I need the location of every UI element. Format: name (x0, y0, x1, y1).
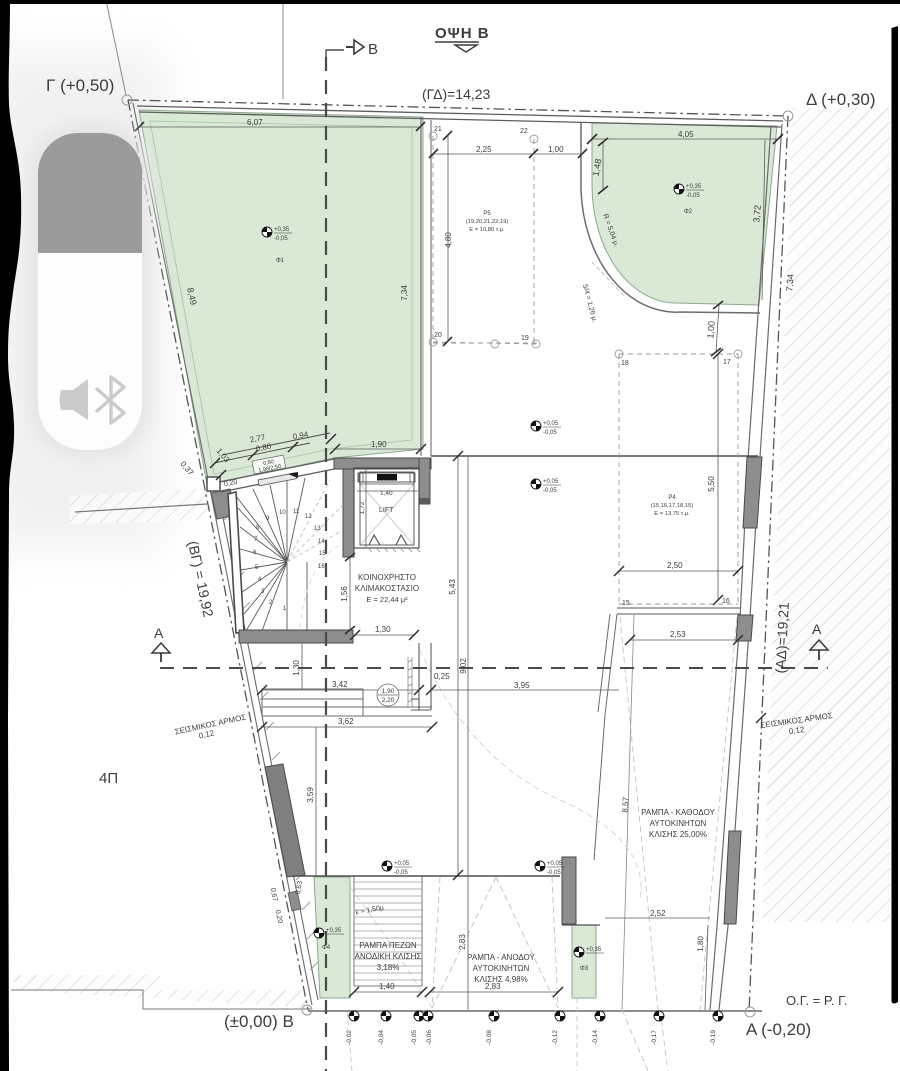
svg-text:7,34: 7,34 (400, 285, 409, 301)
svg-text:5,43: 5,43 (448, 579, 457, 595)
svg-text:2,83: 2,83 (458, 934, 467, 950)
svg-text:0,25: 0,25 (434, 672, 450, 681)
svg-text:Ε = 22,44 μ²: Ε = 22,44 μ² (366, 595, 408, 604)
svg-text:+0,35: +0,35 (586, 947, 602, 953)
svg-text:19: 19 (521, 335, 529, 342)
svg-text:2,25: 2,25 (476, 145, 492, 154)
svg-text:1,40: 1,40 (380, 490, 393, 497)
svg-text:ΟΨΗ Β: ΟΨΗ Β (435, 25, 490, 42)
svg-text:+0,05: +0,05 (543, 479, 559, 485)
svg-text:ΡΑΜΠΑ ΠΕΖΩΝ: ΡΑΜΠΑ ΠΕΖΩΝ (359, 941, 417, 950)
svg-text:ΚΛΙΜΑΚΟΣΤΑΣΙΟ: ΚΛΙΜΑΚΟΣΤΑΣΙΟ (355, 584, 419, 593)
svg-text:(19,20,21,22,19): (19,20,21,22,19) (466, 219, 509, 225)
svg-text:B: B (368, 41, 378, 58)
svg-text:16: 16 (722, 598, 730, 605)
svg-text:ΚΛΙΣΗΣ 25,00%: ΚΛΙΣΗΣ 25,00% (649, 830, 707, 839)
svg-text:8,57: 8,57 (621, 796, 631, 813)
svg-text:ΚΟΙΝΟΧΡΗΣΤΟ: ΚΟΙΝΟΧΡΗΣΤΟ (358, 573, 416, 582)
svg-text:2,52: 2,52 (650, 909, 666, 918)
svg-text:1,00: 1,00 (705, 321, 716, 339)
svg-text:Ε = 13,75 τ.μ.: Ε = 13,75 τ.μ. (654, 511, 690, 517)
svg-text:1,72: 1,72 (359, 501, 366, 514)
svg-text:9,02: 9,02 (459, 658, 468, 674)
svg-text:-0,05: -0,05 (543, 488, 557, 494)
svg-text:2,50: 2,50 (667, 561, 683, 570)
svg-text:3,59: 3,59 (306, 787, 315, 803)
svg-text:A: A (154, 625, 164, 641)
svg-text:22: 22 (520, 128, 528, 135)
svg-text:11: 11 (293, 509, 300, 515)
svg-text:-0,19: -0,19 (710, 1030, 717, 1045)
svg-text:2,20: 2,20 (382, 697, 395, 704)
svg-text:-0,05: -0,05 (686, 193, 700, 199)
svg-text:(ΓΔ)=14,23: (ΓΔ)=14,23 (422, 86, 491, 102)
svg-text:(15,16,17,18,15): (15,16,17,18,15) (651, 503, 694, 509)
svg-text:-0,12: -0,12 (552, 1030, 559, 1045)
svg-text:ΡΑΜΠΑ - ΑΝΟΔΟΥ: ΡΑΜΠΑ - ΑΝΟΔΟΥ (467, 953, 535, 962)
svg-text:A: A (812, 621, 822, 637)
svg-text:+0,05: +0,05 (547, 861, 563, 867)
svg-text:13: 13 (314, 526, 321, 532)
svg-text:5,50: 5,50 (707, 476, 716, 492)
svg-text:21: 21 (434, 126, 442, 133)
svg-text:+0,35: +0,35 (274, 227, 290, 233)
svg-text:18: 18 (621, 360, 629, 367)
svg-text:4Π: 4Π (99, 770, 118, 787)
svg-text:-0,05: -0,05 (543, 430, 557, 436)
svg-text:+0,05: +0,05 (394, 861, 410, 867)
svg-text:10: 10 (279, 510, 286, 516)
svg-text:17: 17 (723, 359, 731, 366)
svg-text:3,18%: 3,18% (377, 963, 400, 972)
svg-text:-0,14: -0,14 (592, 1030, 599, 1045)
svg-text:3,72: 3,72 (751, 205, 762, 223)
svg-text:-0,08: -0,08 (486, 1030, 493, 1045)
svg-text:6,07: 6,07 (247, 118, 263, 127)
svg-text:3,42: 3,42 (332, 680, 348, 689)
svg-text:ΚΛΙΣΗΣ 4,98%: ΚΛΙΣΗΣ 4,98% (474, 975, 527, 984)
svg-text:3,95: 3,95 (514, 681, 530, 690)
svg-text:(±0,00) Β: (±0,00) Β (224, 1012, 294, 1031)
svg-text:2,53: 2,53 (670, 630, 686, 639)
svg-text:1,56: 1,56 (340, 586, 349, 602)
svg-text:ΑΥΤΟΚΙΝΗΤΩΝ: ΑΥΤΟΚΙΝΗΤΩΝ (473, 964, 530, 973)
svg-text:-0,17: -0,17 (651, 1030, 658, 1045)
svg-text:Ρ4: Ρ4 (668, 495, 676, 501)
svg-text:-0,06: -0,06 (426, 1030, 433, 1045)
svg-text:1,00: 1,00 (548, 145, 564, 154)
svg-text:1,30: 1,30 (375, 625, 391, 634)
svg-text:1,40: 1,40 (379, 982, 395, 991)
svg-text:1,80: 1,80 (696, 935, 706, 951)
svg-text:Δ (+0,30): Δ (+0,30) (806, 90, 875, 109)
svg-text:16: 16 (318, 564, 325, 570)
svg-text:+0,35: +0,35 (686, 184, 702, 190)
svg-text:Φ2: Φ2 (684, 209, 693, 215)
svg-text:4,05: 4,05 (678, 130, 694, 139)
svg-text:15: 15 (622, 600, 630, 607)
svg-text:20: 20 (434, 332, 442, 339)
svg-text:-0,04: -0,04 (378, 1030, 385, 1045)
svg-text:+0,35: +0,35 (326, 928, 342, 934)
svg-text:1,90: 1,90 (371, 440, 387, 449)
svg-text:4,80: 4,80 (444, 232, 453, 248)
svg-text:Ρ5: Ρ5 (483, 211, 491, 217)
svg-text:Φ3: Φ3 (580, 966, 589, 972)
svg-text:ΑΝΟΔΙΚΗ ΚΛΙΣΗΣ: ΑΝΟΔΙΚΗ ΚΛΙΣΗΣ (355, 952, 422, 961)
svg-text:-0,05: -0,05 (394, 870, 408, 876)
svg-text:ΡΑΜΠΑ - ΚΑΘΟΔΟΥ: ΡΑΜΠΑ - ΚΑΘΟΔΟΥ (641, 808, 715, 817)
svg-text:3,62: 3,62 (338, 717, 354, 726)
svg-text:Α (-0,20): Α (-0,20) (746, 1020, 811, 1039)
svg-text:Ε = 10,80 τ.μ.: Ε = 10,80 τ.μ. (469, 227, 505, 233)
svg-text:-0,05: -0,05 (547, 870, 561, 876)
svg-text:12: 12 (305, 514, 312, 520)
svg-text:7,34: 7,34 (784, 274, 795, 292)
svg-text:-0,05: -0,05 (274, 236, 288, 242)
svg-text:Φ4: Φ4 (322, 945, 331, 951)
svg-text:-0,05: -0,05 (411, 1030, 418, 1045)
svg-text:ΑΥΤΟΚΙΝΗΤΩΝ: ΑΥΤΟΚΙΝΗΤΩΝ (650, 819, 707, 828)
svg-text:+0,05: +0,05 (543, 421, 559, 427)
svg-text:Ο.Γ. = Ρ. Γ.: Ο.Γ. = Ρ. Γ. (786, 993, 847, 1008)
svg-text:14: 14 (318, 539, 325, 545)
svg-text:Φ1: Φ1 (276, 258, 285, 264)
svg-text:2,83: 2,83 (485, 982, 501, 991)
svg-text:1,90: 1,90 (382, 688, 395, 695)
svg-text:Γ (+0,50): Γ (+0,50) (46, 76, 114, 95)
svg-text:LIFT: LIFT (379, 507, 394, 514)
